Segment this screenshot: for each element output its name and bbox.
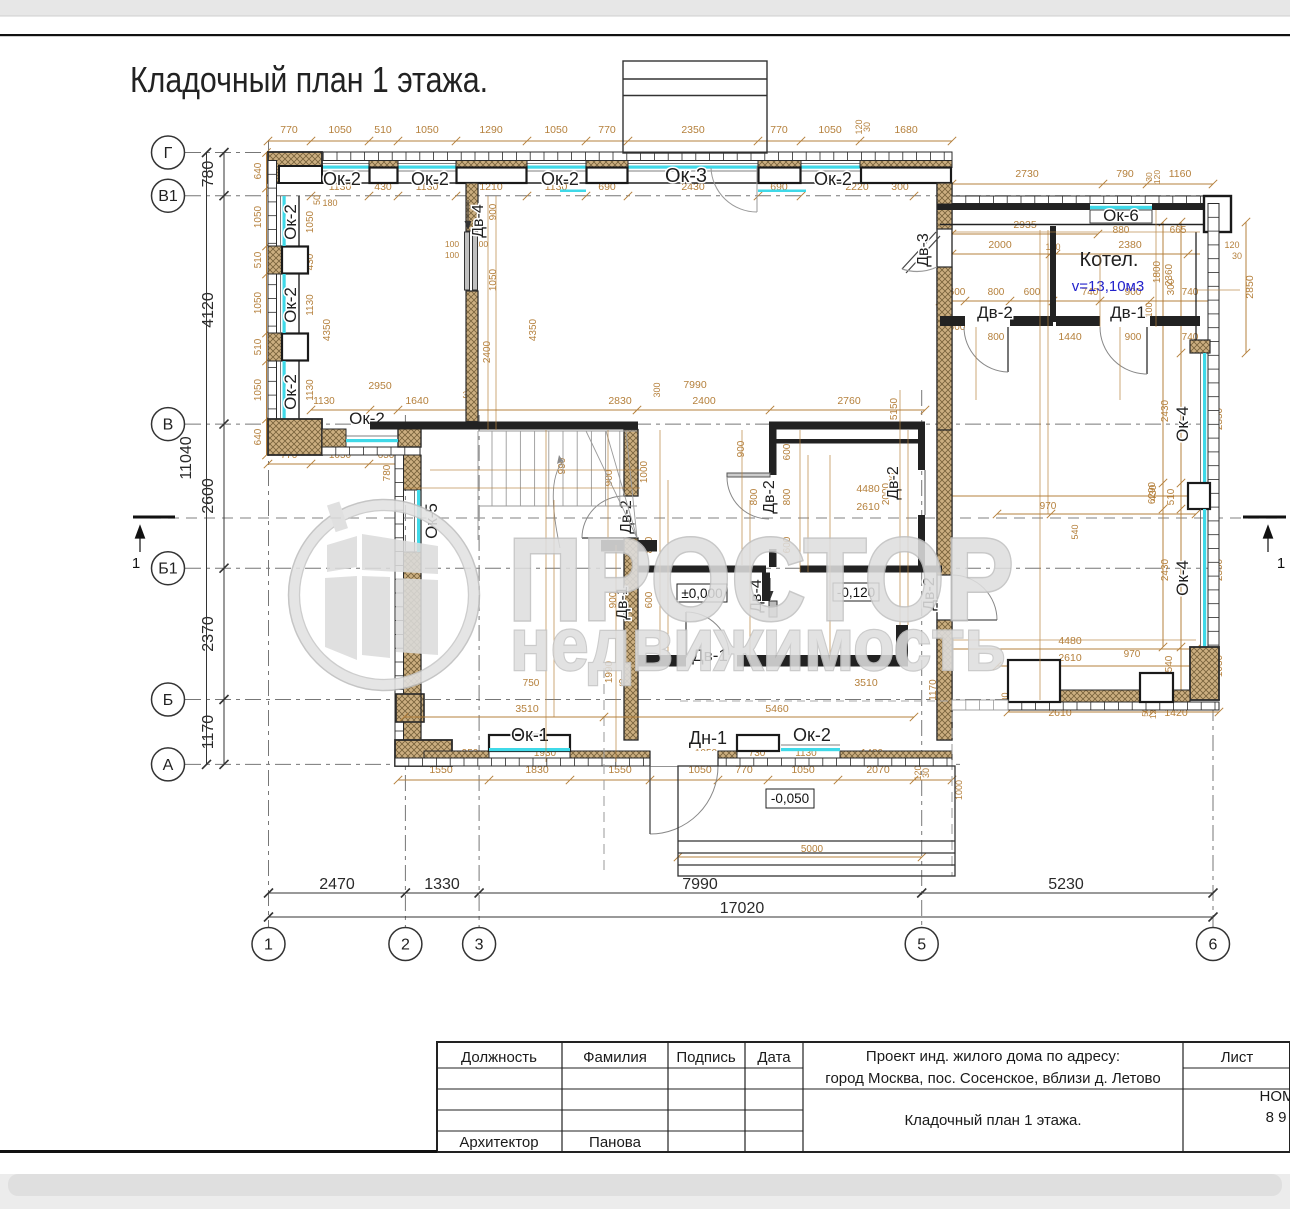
svg-text:1130: 1130 [305,294,316,316]
svg-text:7990: 7990 [683,379,707,391]
svg-text:Ок-4: Ок-4 [1173,406,1192,442]
svg-text:Дата: Дата [757,1049,791,1066]
svg-text:1050: 1050 [415,124,439,136]
svg-text:4120: 4120 [200,292,217,328]
svg-text:900: 900 [736,440,747,457]
svg-text:4350: 4350 [528,318,539,341]
svg-text:1130: 1130 [313,396,335,407]
svg-text:800: 800 [988,287,1005,298]
svg-text:30: 30 [921,768,931,778]
svg-text:1000: 1000 [639,460,650,483]
svg-text:Б1: Б1 [158,561,178,578]
svg-text:Фамилия: Фамилия [583,1049,647,1066]
svg-text:1: 1 [132,555,140,572]
svg-text:800: 800 [749,488,760,505]
svg-text:5230: 5230 [1048,876,1084,893]
svg-text:Ок-3: Ок-3 [665,165,707,187]
svg-text:1050: 1050 [253,205,264,228]
svg-text:2760: 2760 [837,395,861,407]
svg-text:1800: 1800 [1152,260,1163,283]
svg-text:510: 510 [374,124,392,136]
svg-text:v=13,10м3: v=13,10м3 [1072,278,1144,295]
svg-text:1640: 1640 [405,395,429,407]
svg-text:17020: 17020 [720,900,765,917]
svg-text:Ок-2: Ок-2 [814,169,852,189]
svg-text:город Москва, пос. Сосенское,: город Москва, пос. Сосенское, вблизи д. … [825,1070,1160,1087]
svg-text:3510: 3510 [515,703,539,715]
svg-text:Ок-4: Ок-4 [1173,560,1192,596]
svg-text:7990: 7990 [682,876,718,893]
svg-text:4480: 4480 [1058,635,1082,647]
svg-text:Ок-1: Ок-1 [511,725,549,745]
svg-text:2360: 2360 [1164,263,1175,286]
svg-text:-0,050: -0,050 [771,791,809,806]
svg-text:1050: 1050 [488,268,499,291]
svg-text:1050: 1050 [253,378,264,401]
svg-text:2950: 2950 [368,380,392,392]
svg-text:8 9: 8 9 [1266,1109,1287,1126]
svg-text:Б: Б [163,692,174,709]
svg-text:Ок-6: Ок-6 [1103,206,1139,225]
svg-text:665: 665 [1170,225,1187,236]
svg-text:2430: 2430 [1160,558,1171,581]
svg-text:Кладочный план 1 этажа.: Кладочный план 1 этажа. [130,59,488,100]
svg-text:770: 770 [280,124,298,136]
svg-text:2400: 2400 [482,340,493,363]
svg-text:Ок-2: Ок-2 [541,169,579,189]
svg-text:1: 1 [1277,555,1285,572]
svg-text:Дв-1: Дв-1 [1110,303,1146,322]
svg-text:Дв-4: Дв-4 [470,204,487,238]
svg-text:790: 790 [1116,168,1134,180]
svg-text:Подпись: Подпись [676,1049,736,1066]
svg-text:1330: 1330 [424,876,460,893]
svg-text:Котел.: Котел. [1080,249,1139,271]
svg-text:600: 600 [782,443,793,460]
svg-text:120: 120 [1224,240,1239,250]
svg-text:2850: 2850 [1244,275,1256,299]
svg-text:100: 100 [445,239,459,249]
svg-text:2000: 2000 [988,239,1012,251]
svg-text:2600: 2600 [200,478,217,514]
svg-text:30: 30 [862,122,872,132]
svg-text:770: 770 [770,124,788,136]
svg-text:1: 1 [264,937,273,954]
svg-text:Дв-3: Дв-3 [915,233,932,267]
svg-text:2350: 2350 [681,124,705,136]
svg-text:540: 540 [1164,655,1175,672]
svg-text:3: 3 [475,937,484,954]
svg-text:970: 970 [1124,649,1141,660]
svg-text:А: А [163,757,174,774]
svg-text:1170: 1170 [200,715,217,750]
svg-text:50: 50 [312,195,322,205]
svg-text:Ок-2: Ок-2 [281,204,300,240]
svg-text:2610: 2610 [1058,652,1082,664]
svg-text:1050: 1050 [305,210,316,233]
svg-text:Дн-1: Дн-1 [689,728,727,748]
svg-text:2610: 2610 [856,501,880,513]
svg-text:Архитектор: Архитектор [459,1134,538,1151]
svg-text:Дв-2: Дв-2 [977,303,1013,322]
svg-text:770: 770 [598,124,616,136]
svg-text:800: 800 [988,332,1005,343]
svg-text:1050: 1050 [253,291,264,314]
svg-text:1050: 1050 [328,124,352,136]
svg-text:510: 510 [1166,488,1177,505]
svg-text:5150: 5150 [889,397,900,420]
svg-text:В1: В1 [158,188,178,205]
svg-text:Должность: Должность [461,1049,537,1066]
svg-text:Ок-2: Ок-2 [411,169,449,189]
svg-text:Ок-2: Ок-2 [281,374,300,410]
svg-text:640: 640 [253,162,264,179]
svg-text:30: 30 [1232,251,1242,261]
svg-text:5460: 5460 [765,703,789,715]
svg-text:Дв-2: Дв-2 [761,480,778,514]
svg-text:1290: 1290 [479,124,503,136]
svg-text:800: 800 [782,488,793,505]
svg-text:100: 100 [445,250,459,260]
svg-text:180: 180 [322,198,337,208]
svg-text:Ок-2: Ок-2 [793,725,831,745]
svg-text:2830: 2830 [608,395,632,407]
svg-text:640: 640 [253,428,264,445]
svg-text:1680: 1680 [894,124,918,136]
svg-text:НОМ: НОМ [1260,1088,1290,1105]
svg-text:880: 880 [1113,225,1130,236]
svg-text:Проект инд. жилого дома по адр: Проект инд. жилого дома по адресу: [866,1048,1120,1065]
svg-text:2370: 2370 [200,616,217,652]
svg-text:780: 780 [200,161,217,188]
svg-text:Лист: Лист [1221,1049,1254,1066]
svg-text:900: 900 [1125,332,1142,343]
svg-text:4480: 4480 [856,483,880,495]
svg-text:2430: 2430 [1160,399,1171,422]
svg-text:1160: 1160 [1169,168,1192,180]
svg-text:510: 510 [253,251,264,268]
svg-text:1050: 1050 [818,124,842,136]
svg-text:11040: 11040 [178,436,195,479]
svg-text:780: 780 [382,464,393,481]
svg-text:900: 900 [488,203,499,220]
svg-text:Ок-2: Ок-2 [323,169,361,189]
svg-text:6: 6 [1209,937,1218,954]
svg-text:2470: 2470 [319,876,355,893]
svg-text:4350: 4350 [322,318,333,341]
svg-text:2400: 2400 [692,395,716,407]
svg-text:1440: 1440 [1058,331,1082,343]
svg-text:Ок-2: Ок-2 [281,287,300,323]
svg-text:Г: Г [164,145,173,162]
svg-text:В: В [163,417,174,434]
svg-text:300: 300 [652,382,662,397]
svg-text:Дв-2: Дв-2 [885,466,902,500]
svg-text:6290: 6290 [1147,481,1158,504]
svg-text:Кладочный план 1 этажа.: Кладочный план 1 этажа. [904,1112,1081,1129]
svg-text:2730: 2730 [1015,168,1039,180]
svg-text:2: 2 [401,937,410,954]
svg-text:1050: 1050 [544,124,568,136]
svg-text:540: 540 [1070,524,1080,539]
svg-text:недвижимость: недвижимость [510,603,1006,686]
svg-text:120: 120 [1152,170,1162,184]
svg-text:600: 600 [1024,287,1041,298]
svg-text:5: 5 [917,937,926,954]
svg-text:Панова: Панова [589,1134,642,1151]
svg-text:510: 510 [253,338,264,355]
